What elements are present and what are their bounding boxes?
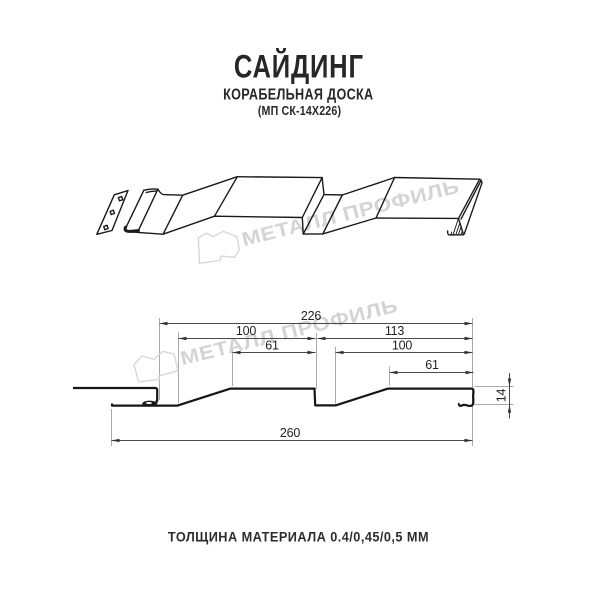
svg-text:61: 61 — [425, 358, 439, 372]
svg-text:113: 113 — [385, 324, 405, 338]
svg-text:61: 61 — [265, 339, 279, 353]
svg-text:226: 226 — [301, 309, 322, 323]
svg-text:14: 14 — [495, 389, 509, 403]
svg-text:(МП СК-14Х226): (МП СК-14Х226) — [258, 103, 341, 118]
svg-text:100: 100 — [392, 339, 413, 353]
svg-text:100: 100 — [236, 324, 257, 338]
svg-text:ТОЛЩИНА МАТЕРИАЛА 0.4/0,45/0,5: ТОЛЩИНА МАТЕРИАЛА 0.4/0,45/0,5 ММ — [168, 529, 429, 545]
svg-text:САЙДИНГ: САЙДИНГ — [234, 48, 364, 86]
svg-text:КОРАБЕЛЬНАЯ ДОСКА: КОРАБЕЛЬНАЯ ДОСКА — [223, 86, 374, 104]
svg-text:260: 260 — [280, 426, 301, 440]
